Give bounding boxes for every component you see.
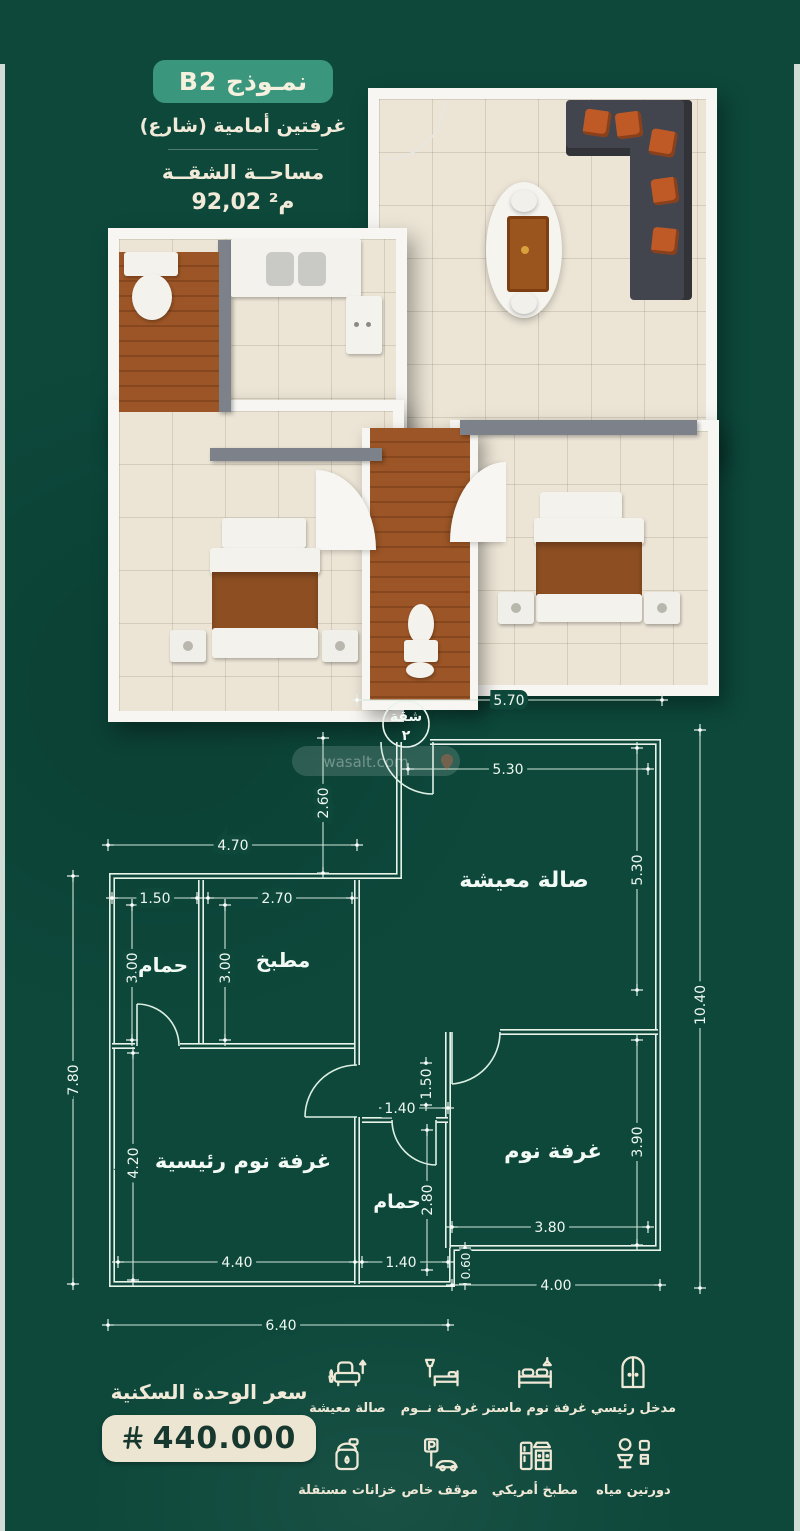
room-label: حمام — [138, 953, 188, 977]
dimension-label: 6.40 — [265, 1318, 296, 1334]
cabinet-knob — [354, 322, 359, 327]
header: نمـوذج B2 غرفتين أمامية (شارع) مساحــة ا… — [128, 60, 358, 215]
toilet — [124, 252, 178, 276]
dimension-label: 5.30 — [630, 854, 646, 885]
dimension-label: 3.90 — [630, 1126, 646, 1157]
feature-two-bathrooms: دورتين مياه — [591, 1434, 676, 1498]
dresser — [222, 518, 306, 548]
toilet — [404, 640, 438, 662]
bed-blanket — [212, 572, 318, 630]
dimension-label: 3.80 — [534, 1220, 565, 1236]
badge-line2: ٢ — [402, 728, 411, 744]
header-divider — [168, 149, 318, 150]
dining-chair — [511, 292, 537, 314]
door-icon — [612, 1352, 654, 1394]
apartment-number-badge: شقة ٢ — [383, 701, 429, 747]
feature-private-parking: موقف خاص — [401, 1434, 479, 1498]
feature-living-room: صالة معيشة — [298, 1352, 396, 1416]
bed-headboard — [534, 518, 644, 544]
saudi-riyal-symbol-icon — [122, 1426, 144, 1452]
dimension-label: 1.40 — [385, 1255, 416, 1271]
feature-label: دورتين مياه — [596, 1483, 671, 1498]
bed-foot — [536, 594, 642, 622]
room-label: غرفة نوم رئيسية — [155, 1149, 331, 1173]
feature-american-kitchen: مطبخ أمريكي — [483, 1434, 587, 1498]
dimension-label: 4.40 — [221, 1255, 252, 1271]
dimension-label: 7.80 — [66, 1064, 82, 1095]
bed-foot — [212, 628, 318, 658]
dimension-label: 5.70 — [493, 693, 524, 709]
sofa-cushion — [648, 128, 678, 158]
badge-line1: شقة — [390, 709, 422, 725]
features-grid: مدخل رئيسي غرفة نوم ماستر غرفــة نــوم ص… — [320, 1352, 676, 1498]
page-edge-right — [794, 64, 800, 1531]
render-wall — [210, 448, 382, 461]
feature-bedroom: غرفــة نــوم — [401, 1352, 479, 1416]
nightstand — [498, 592, 534, 624]
page-edge-left — [0, 64, 5, 1531]
dimension-label: 2.60 — [316, 787, 332, 818]
nightstand — [170, 630, 206, 662]
kitchen-icon — [514, 1434, 556, 1476]
sofa-icon — [326, 1352, 368, 1394]
dining-table — [507, 216, 549, 292]
sofa-cushion — [650, 176, 679, 205]
sofa-cushion — [651, 227, 680, 256]
room-label: غرفة نوم — [504, 1139, 602, 1163]
table-centerpiece — [521, 246, 529, 254]
feature-label: مدخل رئيسي — [591, 1401, 676, 1416]
dimension-label: 1.40 — [384, 1101, 415, 1117]
feature-label: غرفة نوم ماستر — [483, 1401, 587, 1416]
dimension-label: 3.00 — [218, 952, 234, 983]
bed-blanket — [536, 542, 642, 596]
nightstand — [644, 592, 680, 624]
kitchen-sink — [266, 252, 294, 286]
price-block: سعر الوحدة السكنية 440.000 — [100, 1380, 318, 1462]
render-wall — [460, 420, 697, 435]
kitchen-counter — [231, 239, 361, 297]
cabinet-knob — [366, 322, 371, 327]
watermark: wasalt.com — [292, 746, 460, 776]
kitchen-cabinet — [346, 296, 382, 354]
dresser — [540, 492, 622, 520]
feature-label: موقف خاص — [401, 1483, 477, 1498]
dimension-lines — [73, 700, 700, 1325]
parking-icon — [419, 1434, 461, 1476]
master-bed-icon — [514, 1352, 556, 1394]
area-label: مساحــة الشقــة — [128, 160, 358, 184]
render-wall — [218, 240, 231, 412]
sofa-cushion — [615, 111, 644, 140]
price-label: سعر الوحدة السكنية — [100, 1380, 318, 1404]
render-bathroom-1-floor — [119, 252, 219, 412]
feature-independent-tanks: خزانات مستقلة — [298, 1434, 396, 1498]
dimension-label: 4.20 — [126, 1147, 142, 1178]
dimension-label: 1.50 — [419, 1068, 435, 1099]
nightstand — [322, 630, 358, 662]
room-label: صالة معيشة — [459, 868, 589, 893]
toilet-bowl — [408, 604, 434, 644]
room-label: مطبخ — [256, 948, 310, 972]
room-label: حمام — [373, 1191, 421, 1213]
dimension-label: 2.80 — [420, 1184, 436, 1215]
feature-label: صالة معيشة — [309, 1401, 386, 1416]
feature-main-entrance: مدخل رئيسي — [591, 1352, 676, 1416]
dimension-label: 2.70 — [261, 891, 292, 907]
dining-chair — [511, 190, 537, 212]
price-value: 440.000 — [153, 1421, 297, 1456]
tank-icon — [326, 1434, 368, 1476]
model-badge: نمـوذج B2 — [153, 60, 333, 103]
kitchen-sink — [298, 252, 326, 286]
real-estate-flyer: { "header": { "model_label": "نمـوذج B2"… — [0, 0, 800, 1531]
sofa-cushion — [582, 108, 611, 137]
feature-label: خزانات مستقلة — [298, 1483, 396, 1498]
toilet-bowl — [132, 274, 172, 320]
dimension-label: 10.40 — [693, 985, 709, 1025]
model-subtitle: غرفتين أمامية (شارع) — [128, 115, 358, 137]
feature-master-bedroom: غرفة نوم ماستر — [483, 1352, 587, 1416]
price-pill: 440.000 — [102, 1415, 317, 1462]
toilet-icon — [612, 1434, 654, 1476]
dimension-label: 1.50 — [139, 891, 170, 907]
floorplan-2d: 5.70 2.60 5.30 5.30 10.40 4.70 1.50 2.70… — [0, 680, 800, 1360]
dimension-label: 4.70 — [217, 838, 248, 854]
feature-label: مطبخ أمريكي — [492, 1483, 578, 1498]
dimension-label: 4.00 — [540, 1278, 571, 1294]
bed-icon — [419, 1352, 461, 1394]
bed-headboard — [210, 548, 320, 574]
feature-label: غرفــة نــوم — [401, 1401, 479, 1416]
dimension-label: 0.60 — [459, 1253, 473, 1280]
dimension-label: 5.30 — [492, 762, 523, 778]
area-value: 92,02 م² — [128, 190, 358, 215]
watermark-text: wasalt.com — [323, 753, 408, 771]
room-labels: صالة معيشة مطبخ حمام غرفة نوم رئيسية حما… — [138, 868, 602, 1213]
bathroom-sink — [406, 662, 434, 678]
